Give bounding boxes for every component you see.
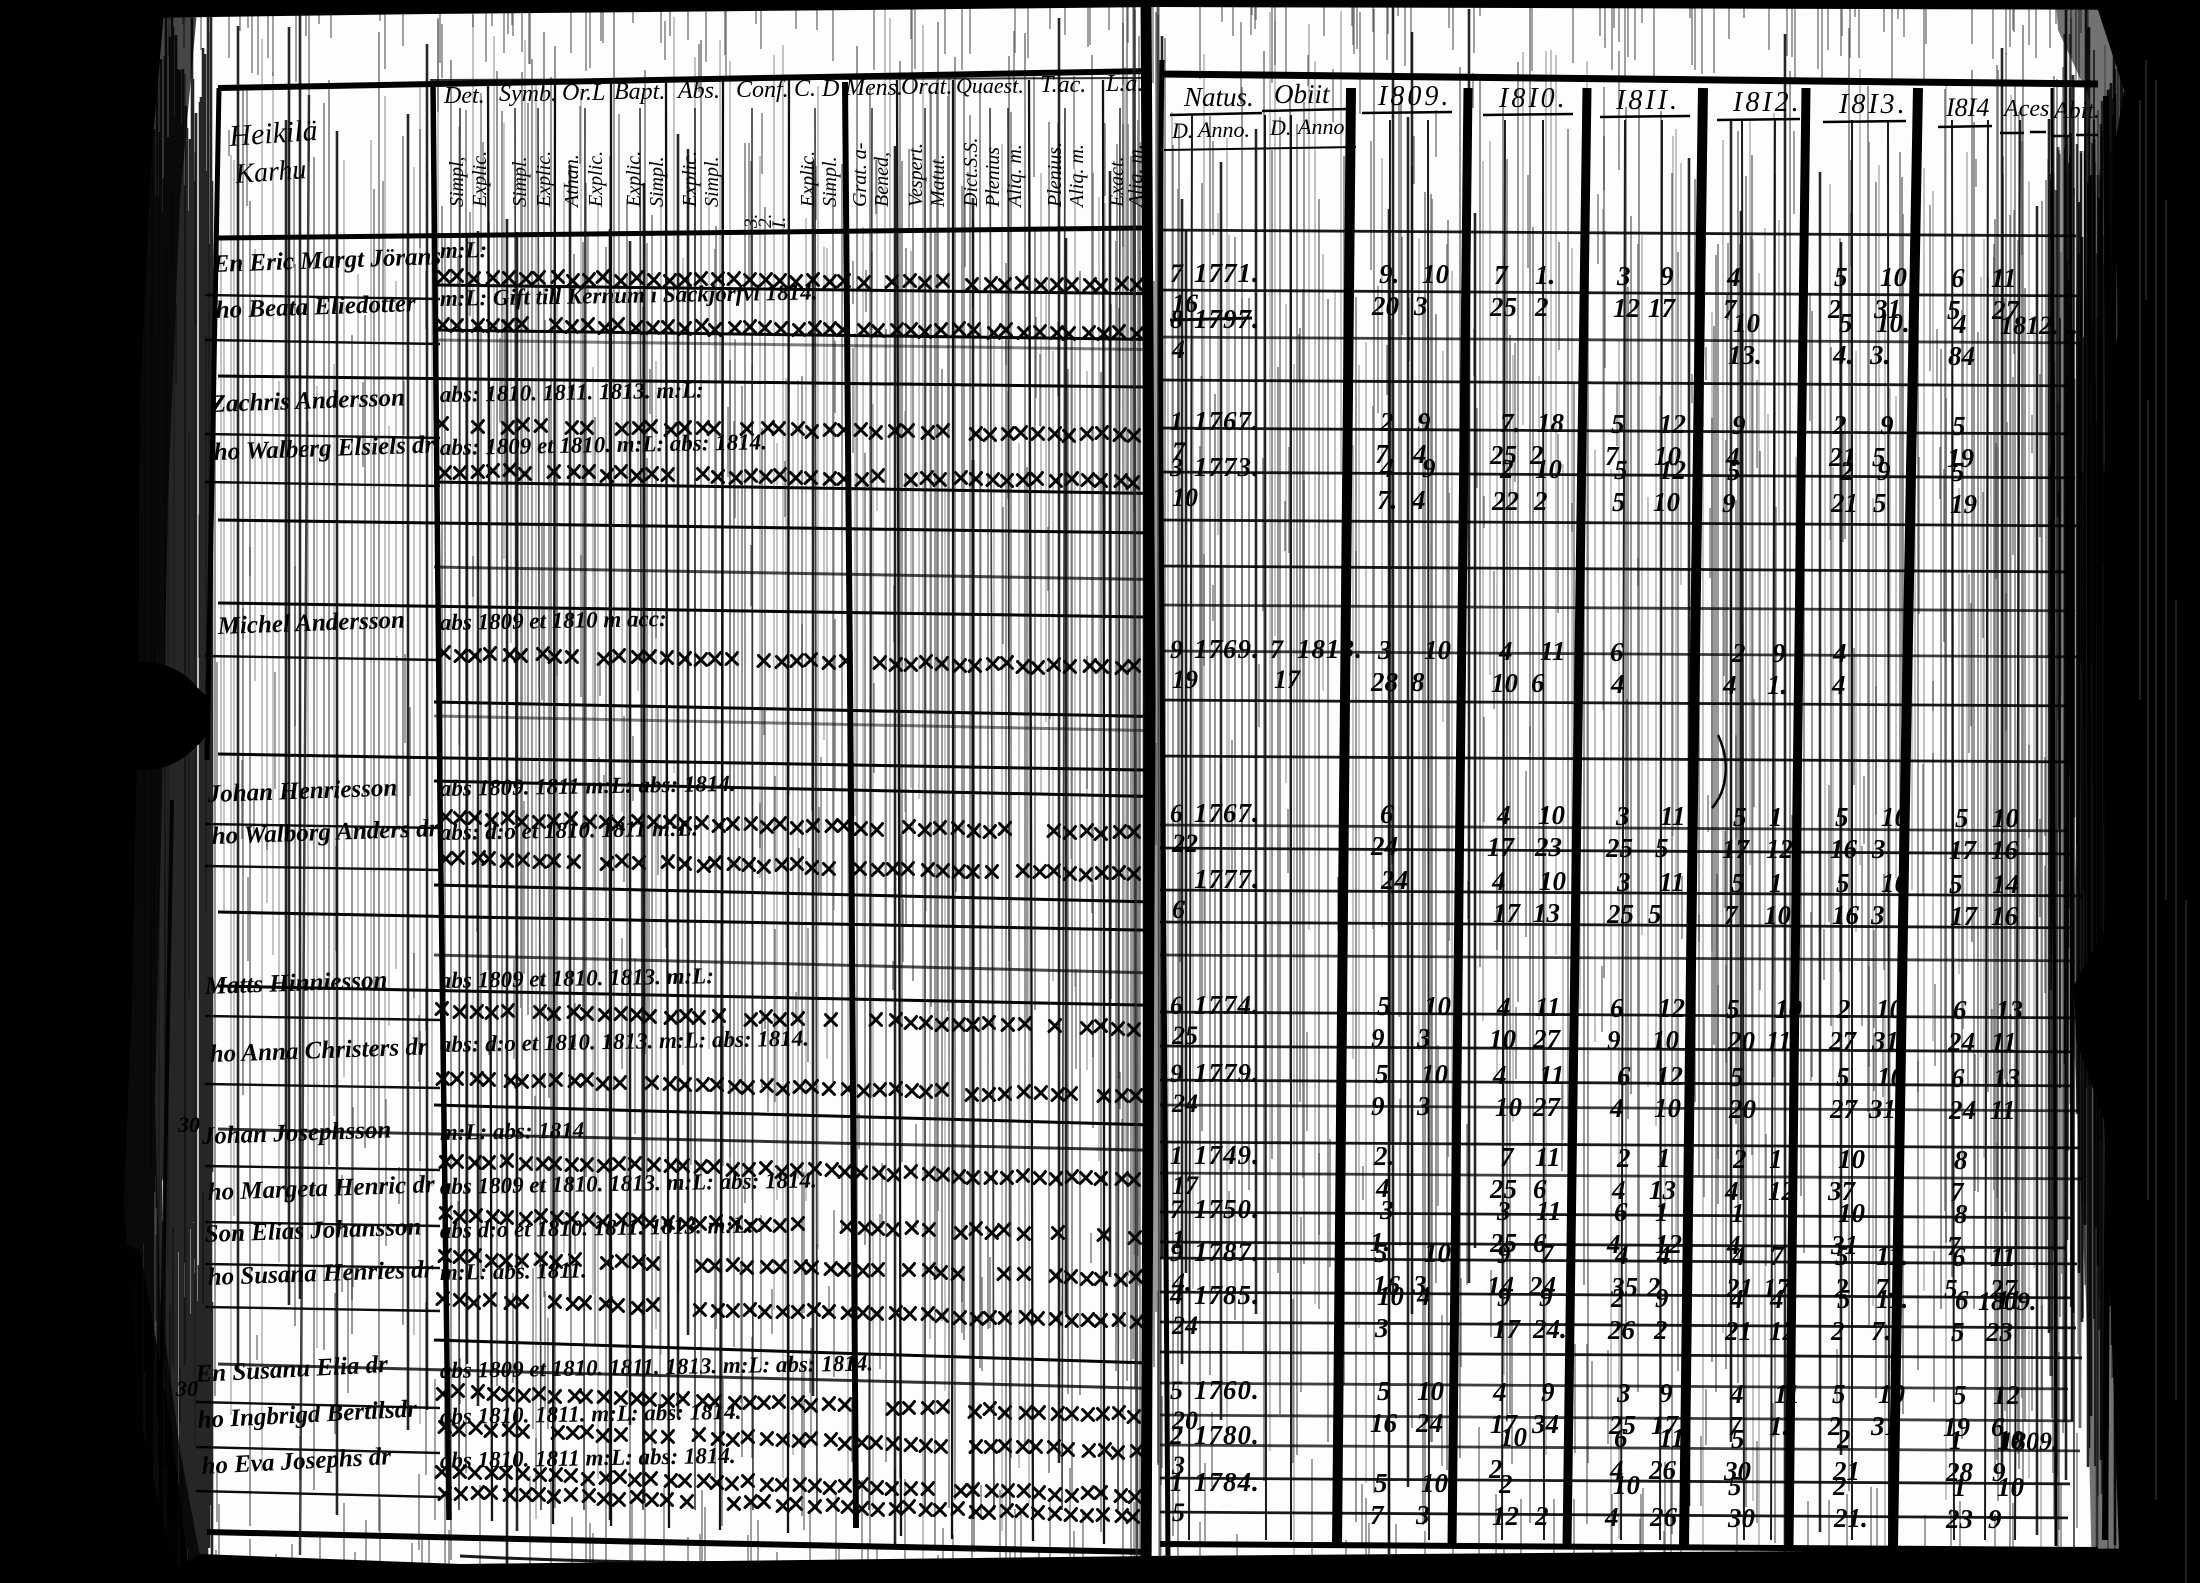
svg-text:9: 9 [1539,1282,1553,1312]
svg-text:4: 4 [1492,1377,1507,1407]
svg-text:10: 10 [1880,262,1908,292]
svg-text:10: 10 [1489,1024,1517,1054]
svg-text:5: 5 [1170,1376,1183,1405]
svg-text:Explic.: Explic. [797,151,819,208]
svg-text:3: 3 [1616,867,1631,897]
svg-text:11: 11 [1659,1423,1685,1453]
svg-text:26: 26 [1649,1502,1678,1532]
svg-text:abs 1809 et 1810. 1813. m:L:: abs 1809 et 1810. 1813. m:L: [440,963,714,993]
svg-text:3: 3 [1615,801,1630,831]
svg-text:20: 20 [1728,1094,1757,1124]
svg-text:24.: 24. [1532,1314,1567,1344]
svg-text:5: 5 [1839,308,1853,338]
svg-text:10: 10 [1881,802,1909,832]
svg-text:6: 6 [1951,263,1965,293]
svg-text:5: 5 [1731,868,1745,898]
svg-text:Karhu: Karhu [233,154,307,190]
svg-text:7: 7 [1170,1195,1184,1224]
svg-text:11: 11 [1991,263,2017,293]
svg-text:5: 5 [1949,869,1963,899]
svg-text:5: 5 [1835,1241,1849,1271]
svg-text:5: 5 [1731,1424,1745,1454]
svg-text:5: 5 [1374,1238,1388,1268]
svg-text:D.: D. [1171,118,1193,143]
svg-text:5: 5 [1953,1380,1967,1410]
svg-text:4: 4 [1171,335,1185,364]
svg-text:5: 5 [1837,1284,1851,1314]
svg-text:11: 11 [1539,1060,1565,1090]
svg-text:5: 5 [1377,991,1391,1021]
svg-text:abs 1809. 1811 m:L: abs: abs 1809. 1811 m:L: abs: 1814. [440,771,736,801]
svg-text:4: 4 [1609,1093,1624,1123]
svg-text:6: 6 [1617,1061,1631,1091]
svg-text:I8I0.: I8I0. [1498,83,1568,114]
svg-text:9: 9 [1880,410,1894,440]
svg-text:Det.: Det. [443,83,485,109]
svg-text:3: 3 [1169,453,1183,482]
svg-text:Anno.: Anno. [1196,117,1250,142]
svg-text:7: 7 [1724,900,1739,930]
svg-text:T.ac.: T.ac. [1040,72,1086,98]
svg-text:1813.: 1813. [1297,634,1363,664]
svg-text:4: 4 [1496,800,1511,830]
svg-text:26: 26 [1648,1455,1677,1485]
svg-text:1: 1 [1655,1197,1669,1227]
svg-text:Quaest.: Quaest. [956,73,1024,98]
svg-text:Matut.: Matut. [927,154,949,208]
svg-text:abs 1809 et 1810 m acc:: abs 1809 et 1810 m acc: [440,606,667,635]
svg-text:1767.: 1767. [1194,798,1260,828]
svg-text:3: 3 [1616,261,1631,291]
svg-text:11: 11 [1774,1379,1800,1409]
svg-text:24: 24 [1370,831,1398,861]
svg-text:10: 10 [1653,487,1681,517]
svg-text:10: 10 [1733,308,1761,338]
svg-text:5: 5 [1611,409,1625,439]
svg-text:1812. ..: 1812. .. [2000,311,2078,340]
svg-text:m:L: abs. 1811.: m:L: abs. 1811. [440,1257,587,1285]
svg-text:m:L:: m:L: [440,237,488,263]
svg-text:10: 10 [1538,800,1566,830]
svg-text:Conf.: Conf. [736,77,789,103]
svg-text:10: 10 [1876,994,1904,1024]
svg-text:9: 9 [1988,1504,2002,1534]
svg-text:10: 10 [1654,1093,1682,1123]
svg-text:5: 5 [1835,802,1849,832]
svg-text:5: 5 [1726,994,1740,1024]
svg-text:Athan.: Athan. [561,154,583,209]
svg-text:19: 19 [1950,489,1978,519]
svg-text:23: 23 [1534,832,1562,862]
svg-text:11: 11 [1990,1095,2016,1125]
svg-text:5: 5 [1648,899,1662,929]
svg-text:10.: 10. [1876,308,1910,338]
svg-text:Heikilä: Heikilä [227,114,318,153]
svg-text:9: 9 [1541,1377,1555,1407]
svg-text:Explic.: Explic. [469,151,491,208]
svg-text:1774.: 1774. [1194,990,1260,1020]
svg-text:14: 14 [1992,869,2019,899]
svg-text:10: 10 [1992,803,2020,833]
svg-text:1809.: 1809. [2000,1427,2059,1456]
svg-text:Mens.: Mens. [844,75,903,101]
svg-text:18: 18 [1537,408,1565,438]
svg-text:24: 24 [1171,1089,1198,1118]
svg-text:1785.: 1785. [1194,1280,1260,1310]
svg-text:11.: 11. [1876,1284,1908,1314]
svg-text:6: 6 [1531,668,1545,698]
svg-text:5: 5 [1730,1062,1744,1092]
svg-text:Anno.: Anno. [1296,114,1350,139]
svg-text:11.: 11. [1876,1241,1908,1271]
svg-text:8: 8 [1954,1145,1968,1175]
svg-text:17: 17 [1722,834,1751,864]
svg-text:12: 12 [1613,293,1640,323]
svg-text:5: 5 [1836,1062,1850,1092]
svg-text:10: 10 [1172,483,1198,512]
svg-text:21: 21 [1830,488,1858,518]
svg-text:3: 3 [1377,635,1392,665]
svg-text:5: 5 [1873,488,1887,518]
svg-text:2: 2 [1732,1144,1747,1174]
svg-text:16: 16 [1830,834,1858,864]
svg-text:10: 10 [1613,1470,1641,1500]
svg-text:1.: 1. [1535,260,1555,290]
svg-text:24: 24 [1415,1408,1443,1438]
svg-text:12: 12 [1768,1176,1795,1206]
svg-text:84: 84 [1948,341,1975,371]
svg-text:9: 9 [1170,1238,1183,1267]
svg-text:30: 30 [1727,1503,1756,1533]
svg-text:3: 3 [1416,1091,1431,1121]
svg-text:1779.: 1779. [1194,1058,1260,1088]
svg-text:28: 28 [1370,667,1399,697]
svg-text:3: 3 [1416,1023,1431,1053]
svg-text:Explic.: Explic. [623,151,645,208]
svg-text:11: 11 [1536,1196,1562,1226]
svg-text:11: 11 [1540,636,1566,666]
svg-text:3: 3 [1374,1313,1389,1343]
svg-text:10: 10 [1491,668,1519,698]
svg-text:30: 30 [175,1376,198,1401]
svg-text:Obiit: Obiit [1274,79,1331,109]
svg-text:10: 10 [1377,1281,1405,1311]
svg-text:6: 6 [1952,1242,1966,1272]
svg-text:24: 24 [1948,1095,1976,1125]
svg-text:17: 17 [1950,901,1979,931]
svg-text:17: 17 [1274,665,1301,694]
svg-text:2: 2 [1839,456,1854,486]
svg-text:16: 16 [1832,900,1860,930]
svg-text:m:L: abs: 1814: m:L: abs: 1814 [440,1117,585,1145]
svg-text:9: 9 [1732,410,1746,440]
svg-text:9: 9 [1422,453,1436,483]
svg-text:Simpl.: Simpl. [819,156,841,207]
svg-text:9: 9 [1170,1059,1183,1088]
svg-text:8: 8 [1954,1199,1968,1229]
svg-text:4: 4 [1722,670,1737,700]
svg-text:Abit.: Abit. [2052,98,2100,124]
svg-text:4: 4 [1952,309,1967,339]
svg-text:6: 6 [1953,995,1967,1025]
svg-text:9: 9 [1371,1023,1385,1053]
svg-text:6: 6 [1951,1063,1965,1093]
svg-text:1: 1 [1657,1143,1671,1173]
svg-text:11: 11 [1535,1142,1561,1172]
svg-text:9: 9 [1170,635,1183,664]
svg-text:1: 1 [1769,1144,1783,1174]
svg-text:16: 16 [1370,1408,1398,1438]
svg-text:1: 1 [1170,407,1183,436]
svg-text:4: 4 [1411,485,1426,515]
svg-text:1784.: 1784. [1194,1467,1260,1497]
svg-text:Orat.: Orat. [901,74,952,100]
svg-text:9: 9 [1417,407,1431,437]
svg-text:6: 6 [1955,1285,1969,1315]
svg-text:2: 2 [1830,1316,1845,1346]
svg-text:10: 10 [1421,1059,1449,1089]
svg-text:10: 10 [1997,1472,2025,1502]
svg-text:1773.: 1773. [1194,452,1260,482]
svg-text:4: 4 [1491,866,1506,896]
svg-text:10: 10 [1424,635,1452,665]
svg-text:1: 1 [1170,1141,1183,1170]
svg-text:24: 24 [1171,1311,1198,1340]
svg-text:Natus.: Natus. [1183,82,1254,112]
svg-text:2: 2 [1379,407,1394,437]
svg-text:8: 8 [1411,667,1425,697]
svg-text:5: 5 [1834,262,1848,292]
svg-text:7: 7 [1170,259,1184,288]
svg-text:4: 4 [1726,262,1741,292]
svg-text:7: 7 [1370,1500,1385,1530]
svg-text:31: 31 [1870,1411,1898,1441]
svg-text:5: 5 [1377,1376,1391,1406]
svg-text:10: 10 [1881,868,1909,898]
svg-text:2: 2 [1534,1501,1549,1531]
svg-text:5: 5 [1733,802,1747,832]
svg-text:3: 3 [1870,900,1885,930]
svg-text:3: 3 [1871,834,1886,864]
svg-text:Symb.: Symb. [499,81,557,107]
svg-text:I809.: I809. [1377,81,1451,112]
svg-text:12: 12 [1993,1380,2020,1410]
svg-text:9: 9 [1371,1091,1385,1121]
svg-text:7: 7 [1494,260,1509,290]
svg-text:2: 2 [1836,1424,1851,1454]
svg-text:17: 17 [1487,832,1516,862]
svg-text:5: 5 [1955,803,1969,833]
svg-text:2: 2 [1616,1143,1631,1173]
svg-text:9: 9 [1877,456,1891,486]
svg-text:Aliq. m.: Aliq. m. [1125,144,1147,209]
svg-text:4: 4 [1614,1240,1629,1270]
svg-text:6: 6 [1614,1197,1628,1227]
svg-text:19: 19 [1172,665,1198,694]
svg-text:11: 11 [1535,992,1561,1022]
svg-text:4: 4 [1496,992,1511,1022]
svg-text:6: 6 [1380,799,1394,829]
svg-text:11: 11 [1991,1027,2017,1057]
svg-text:Or.L: Or.L [562,80,605,106]
svg-text:10: 10 [1878,1379,1906,1409]
svg-text:7: 7 [1770,1241,1785,1271]
svg-text:C. D: C. D [794,76,839,102]
svg-text:9: 9 [1497,1239,1511,1269]
svg-text:1787.: 1787. [1194,1237,1260,1267]
svg-text:10: 10 [1417,1376,1445,1406]
svg-text:22: 22 [1491,486,1519,516]
svg-text:12: 12 [1769,1316,1796,1346]
svg-text:I8I2.: I8I2. [1732,87,1802,118]
svg-text:3: 3 [1616,1378,1631,1408]
svg-text:12: 12 [1766,834,1793,864]
svg-text:6: 6 [1170,991,1183,1020]
svg-text:1777.: 1777. [1194,864,1260,894]
svg-text:2: 2 [1534,292,1549,322]
svg-text:30: 30 [177,1112,200,1137]
svg-text:21: 21 [1724,1316,1752,1346]
svg-text:17: 17 [1493,1314,1522,1344]
svg-text:7: 7 [1540,1239,1555,1269]
svg-text:5: 5 [1836,868,1850,898]
svg-text:D.: D. [1269,115,1291,140]
svg-text:5: 5 [1728,1471,1742,1501]
svg-text:23: 23 [1985,1317,2013,1347]
svg-text:1: 1 [1953,1472,1967,1502]
svg-text:25: 25 [1605,833,1633,863]
svg-text:10: 10 [1838,1144,1866,1174]
svg-text:11: 11 [1659,867,1685,897]
svg-text:5: 5 [1952,411,1966,441]
svg-text:4: 4 [1498,636,1513,666]
svg-text:3: 3 [1379,1195,1394,1225]
svg-text:3: 3 [1413,291,1428,321]
svg-text:24: 24 [1380,865,1408,895]
svg-text:16: 16 [1991,835,2019,865]
svg-text:9: 9 [1497,1282,1511,1312]
svg-text:11.: 11. [1766,1026,1798,1056]
svg-text:Simpl,: Simpl, [446,156,468,207]
svg-text:1: 1 [1949,1425,1963,1455]
svg-text:12: 12 [1658,993,1685,1023]
svg-text:Aliq. m.: Aliq. m. [1066,144,1088,209]
svg-text:13.: 13. [1728,340,1762,370]
svg-text:7: 7 [1500,1142,1515,1172]
svg-text:Aces.: Aces. [2002,96,2055,122]
svg-text:10: 10 [1495,1092,1523,1122]
svg-text:20: 20 [1727,1026,1756,1056]
svg-text:4: 4 [1492,1060,1507,1090]
svg-text:1809.: 1809. [1978,1287,2037,1316]
svg-text:9.: 9. [1379,259,1399,289]
svg-text:2: 2 [1610,1283,1625,1313]
svg-text:27: 27 [1829,1094,1859,1124]
svg-text:6: 6 [1610,993,1624,1023]
svg-text:4: 4 [1604,1502,1619,1532]
svg-text:27: 27 [1532,1092,1562,1122]
svg-text:6: 6 [1172,895,1185,924]
svg-text:10: 10 [1535,454,1563,484]
svg-text:10: 10 [1775,994,1803,1024]
svg-text:1: 1 [1731,1198,1745,1228]
svg-text:5: 5 [1951,1317,1965,1347]
svg-text:Aliq. m.: Aliq. m. [1004,144,1026,209]
svg-text:2: 2 [1169,1421,1183,1450]
svg-text:Simpl.: Simpl. [509,156,531,207]
svg-text:4: 4 [1729,1379,1744,1409]
svg-text:5: 5 [1951,457,1965,487]
svg-text:2: 2 [1731,638,1746,668]
svg-text:Explic.: Explic. [679,151,701,208]
svg-text:4: 4 [1729,1284,1744,1314]
svg-text:13: 13 [1996,995,2023,1025]
svg-text:3.: 3. [1869,340,1890,370]
svg-text:25: 25 [1171,1021,1198,1050]
svg-text:12: 12 [1659,409,1686,439]
svg-text:23: 23 [1945,1504,1973,1534]
svg-text:3: 3 [1496,1196,1511,1226]
svg-text:10: 10 [1838,1198,1866,1228]
svg-text:9: 9 [1772,638,1786,668]
svg-text:I8I4: I8I4 [1945,93,1989,122]
svg-text:34: 34 [1531,1409,1559,1439]
svg-text:10: 10 [1421,1468,1449,1498]
svg-text:10: 10 [1539,866,1567,896]
svg-text:10: 10 [1652,1025,1680,1055]
svg-text:L.a.: L.a. [1105,71,1143,97]
svg-text:1750.: 1750. [1194,1194,1260,1224]
svg-text:17: 17 [1648,293,1677,323]
svg-text:1767.: 1767. [1194,406,1260,436]
svg-text:2: 2 [1499,454,1514,484]
svg-text:7.: 7. [1500,408,1520,438]
svg-text:Dict.S.S.: Dict.S.S. [960,138,982,208]
svg-text:abs 1810. 1811 m:L: abs: 1: abs 1810. 1811 m:L: abs: 1814. [440,1443,736,1473]
svg-text:27: 27 [1828,1026,1858,1056]
svg-text:2: 2 [1832,410,1847,440]
svg-text:26: 26 [1607,1315,1636,1345]
svg-text:Simpl.: Simpl. [646,156,668,207]
svg-text:2: 2 [1836,994,1851,1024]
svg-text:24: 24 [1947,1027,1975,1057]
svg-text:4: 4 [1379,453,1394,483]
svg-text:11: 11 [1990,1242,2016,1272]
svg-text:Bened,: Bened, [871,152,893,207]
svg-text:12: 12 [1656,1061,1683,1091]
svg-text:1749.: 1749. [1194,1140,1260,1170]
svg-text:2: 2 [1832,1471,1847,1501]
svg-text:21.: 21. [1833,1503,1868,1533]
svg-text:6: 6 [1614,1423,1628,1453]
svg-text:4: 4 [1769,1284,1784,1314]
svg-text:1780.: 1780. [1194,1420,1260,1450]
svg-text:1760.: 1760. [1194,1375,1260,1405]
svg-text:1.: 1. [1769,1411,1789,1441]
svg-text:1771.: 1771. [1194,258,1260,288]
svg-text:7.: 7. [1871,1316,1891,1346]
svg-text:22: 22 [1171,829,1198,858]
svg-text:1: 1 [1769,802,1783,832]
svg-text:4: 4 [1731,1241,1746,1271]
svg-text:9: 9 [1722,488,1736,518]
svg-text:1: 1 [1769,868,1783,898]
svg-text:5: 5 [1374,1468,1388,1498]
svg-text:12: 12 [1659,455,1686,485]
svg-text:31: 31 [1871,1026,1899,1056]
svg-text:5: 5 [1172,1498,1185,1527]
svg-text:16: 16 [1991,901,2019,931]
